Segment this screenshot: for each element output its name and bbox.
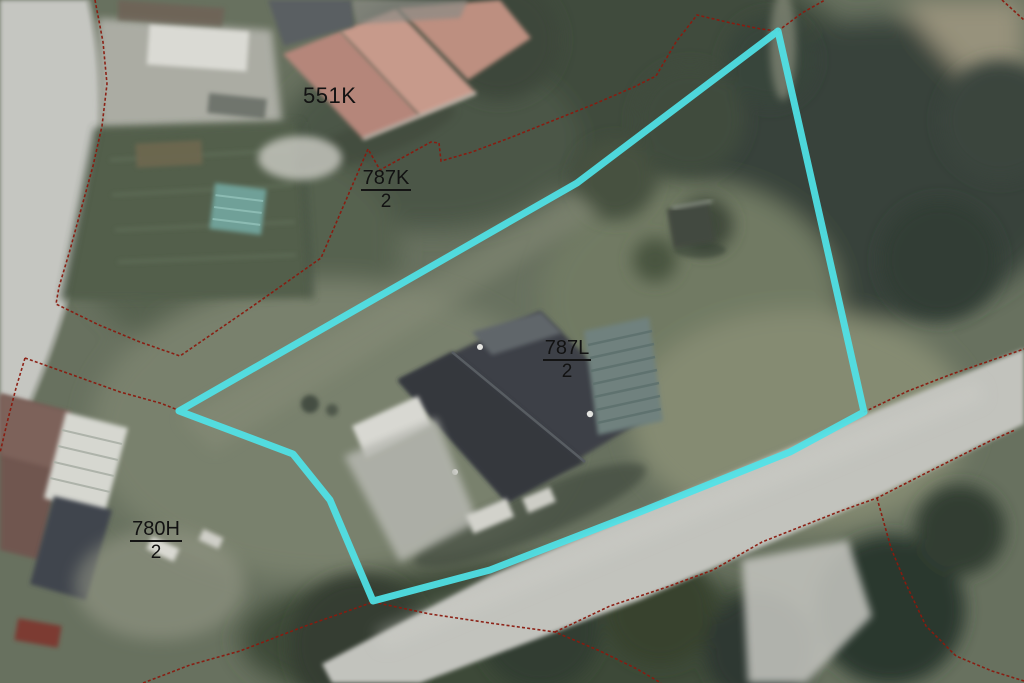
parcel-label-787l-2: 787L 2 — [539, 338, 595, 382]
aerial-map-viewport[interactable]: 551K 787K 2 787L 2 780H 2 — [0, 0, 1024, 683]
selected-parcel-highlight[interactable] — [179, 31, 864, 601]
parcel-label-787k-2: 787K 2 — [358, 168, 414, 212]
parcel-boundary-line — [25, 358, 178, 410]
parcel-label-551k: 551K — [303, 85, 356, 107]
parcel-number-numerator: 780H — [130, 519, 182, 542]
parcel-boundary-line — [56, 0, 825, 356]
parcel-boundary-line — [555, 430, 1015, 632]
parcel-boundary-line — [864, 349, 1024, 412]
parcel-boundary-line — [0, 358, 25, 453]
parcel-number-denominator: 2 — [128, 542, 184, 562]
parcel-number-numerator: 787L — [543, 338, 592, 361]
parcel-number-denominator: 2 — [358, 191, 414, 211]
parcel-boundary-line — [143, 602, 661, 683]
parcel-label-780h-2: 780H 2 — [128, 519, 184, 563]
parcel-boundary-line — [1002, 0, 1024, 20]
parcel-boundary-line — [877, 498, 1024, 681]
parcel-number-denominator: 2 — [539, 361, 595, 381]
parcel-number: 551K — [303, 83, 356, 108]
cadastral-overlay — [0, 0, 1024, 683]
parcel-number-numerator: 787K — [361, 168, 412, 191]
